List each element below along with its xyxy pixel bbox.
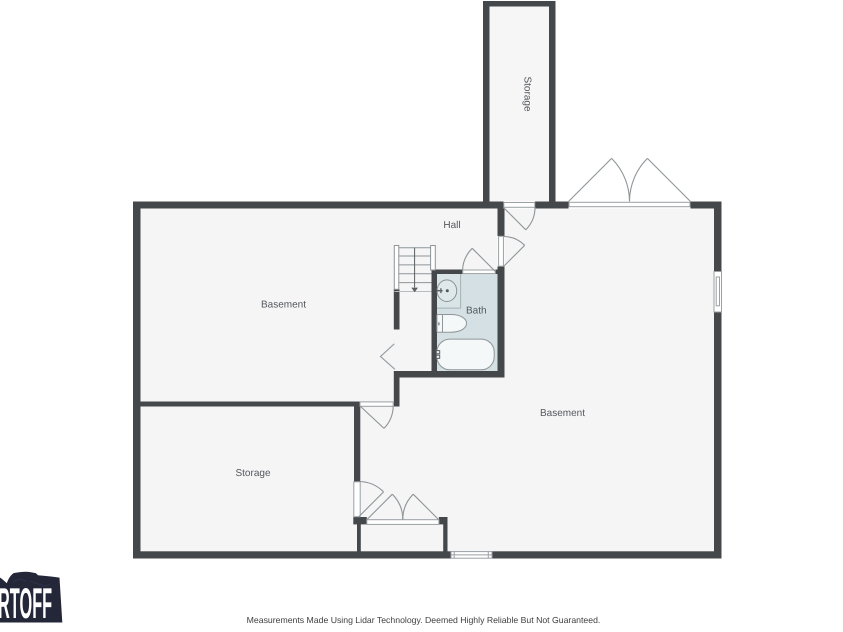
svg-text:Storage: Storage	[235, 468, 270, 479]
svg-text:Bath: Bath	[466, 305, 487, 316]
svg-text:Storage: Storage	[522, 76, 533, 111]
svg-text:Measurements Made Using Lidar: Measurements Made Using Lidar Technology…	[247, 615, 601, 625]
svg-text:Basement: Basement	[261, 300, 306, 311]
svg-text:RTOFF: RTOFF	[0, 580, 52, 628]
svg-text:Hall: Hall	[443, 220, 460, 231]
svg-text:Basement: Basement	[540, 408, 585, 419]
